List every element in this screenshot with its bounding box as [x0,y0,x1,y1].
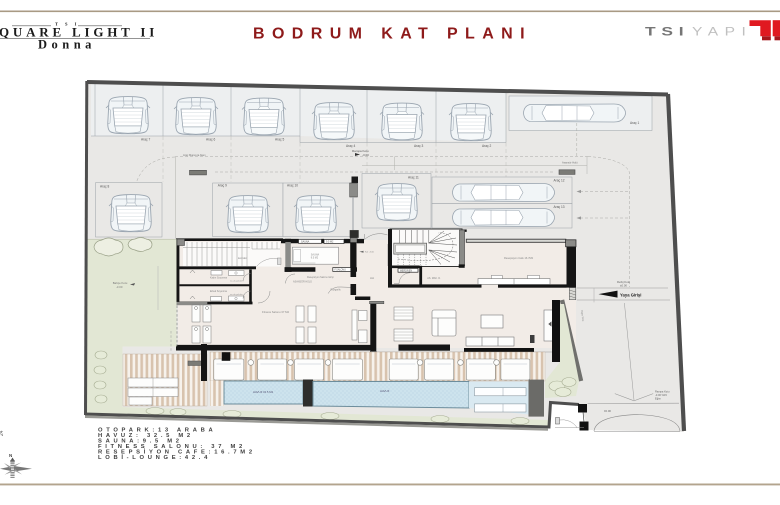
svg-text:Araç 5: Araç 5 [275,138,284,142]
svg-text:wc-duşakabin: wc-duşakabin [230,294,244,296]
svg-text:±0.00: ±0.00 [620,284,627,288]
svg-text:Donna: Donna [38,38,96,52]
svg-text:9.5 M2: 9.5 M2 [326,241,334,244]
svg-text:HAVUZ: HAVUZ [380,389,390,393]
svg-text:Eğim: Eğim [655,397,661,401]
svg-text:Erkek Soyunma: Erkek Soyunma [210,290,228,293]
svg-text:24: 24 [0,430,5,436]
svg-text:Araç 9: Araç 9 [218,183,227,187]
svg-text:Araç 11: Araç 11 [408,176,419,180]
svg-text:-3.00: -3.00 [116,285,123,289]
svg-text:Araç 7: Araç 7 [141,138,150,142]
svg-text:-3.00: -3.00 [362,153,369,157]
svg-text:Araç 4: Araç 4 [346,144,355,148]
svg-text:Araç 13: Araç 13 [554,205,565,209]
svg-text:F.SALONU: F.SALONU [335,269,347,272]
svg-text:MERDİVEN: MERDİVEN [400,269,412,272]
svg-text:Hol: Hol [370,276,374,280]
svg-text:Resepsiyon Salonu Girişi: Resepsiyon Salonu Girişi [307,276,334,279]
svg-text:Araç 12: Araç 12 [554,179,565,183]
svg-text:Araç 1: Araç 1 [630,121,639,125]
svg-text:Kot -3.00: Kot -3.00 [365,251,375,254]
svg-text:HAVUZ 32.5 M2: HAVUZ 32.5 M2 [253,390,274,394]
svg-text:koridor: koridor [238,256,247,260]
svg-text:-3.00 %15: -3.00 %15 [655,393,667,397]
svg-text:TSI: TSI [645,25,689,39]
svg-text:Araç 10: Araç 10 [287,183,298,187]
svg-text:SAUNA: SAUNA [301,240,310,243]
svg-text:LOBİ-LOUNGE:42.4: LOBİ-LOUNGE:42.4 [98,454,211,461]
svg-text:Fitness Salonu 37 M2: Fitness Salonu 37 M2 [262,310,289,314]
svg-text:AS. MAK. D.: AS. MAK. D. [427,277,441,280]
svg-text:ASANSÖR HOLÜ: ASANSÖR HOLÜ [293,280,312,283]
svg-text:9.5 M2: 9.5 M2 [311,257,319,260]
svg-text:Asansör Holü: Asansör Holü [562,161,578,165]
svg-text:Kadın Soyunma: Kadın Soyunma [210,277,228,280]
svg-text:±0.00: ±0.00 [604,409,611,413]
svg-text:BODRUM KAT PLANI: BODRUM KAT PLANI [253,26,532,43]
svg-text:Araç 8: Araç 8 [100,185,109,189]
svg-text:Araç Manevra Alanı: Araç Manevra Alanı [183,153,206,157]
svg-text:Araç 3: Araç 3 [414,144,423,148]
svg-text:Araç 6: Araç 6 [206,138,215,142]
svg-text:Resepsiyon Cafe 16.7M2: Resepsiyon Cafe 16.7M2 [504,256,534,260]
svg-text:Rampa Kotu: Rampa Kotu [655,390,670,394]
svg-text:wc-duşakabin: wc-duşakabin [230,281,244,283]
svg-text:YAPI: YAPI [692,24,752,38]
svg-text:N: N [9,453,12,458]
svg-text:Araç 2: Araç 2 [482,144,491,148]
svg-text:Yaya Girişi: Yaya Girişi [620,293,641,298]
